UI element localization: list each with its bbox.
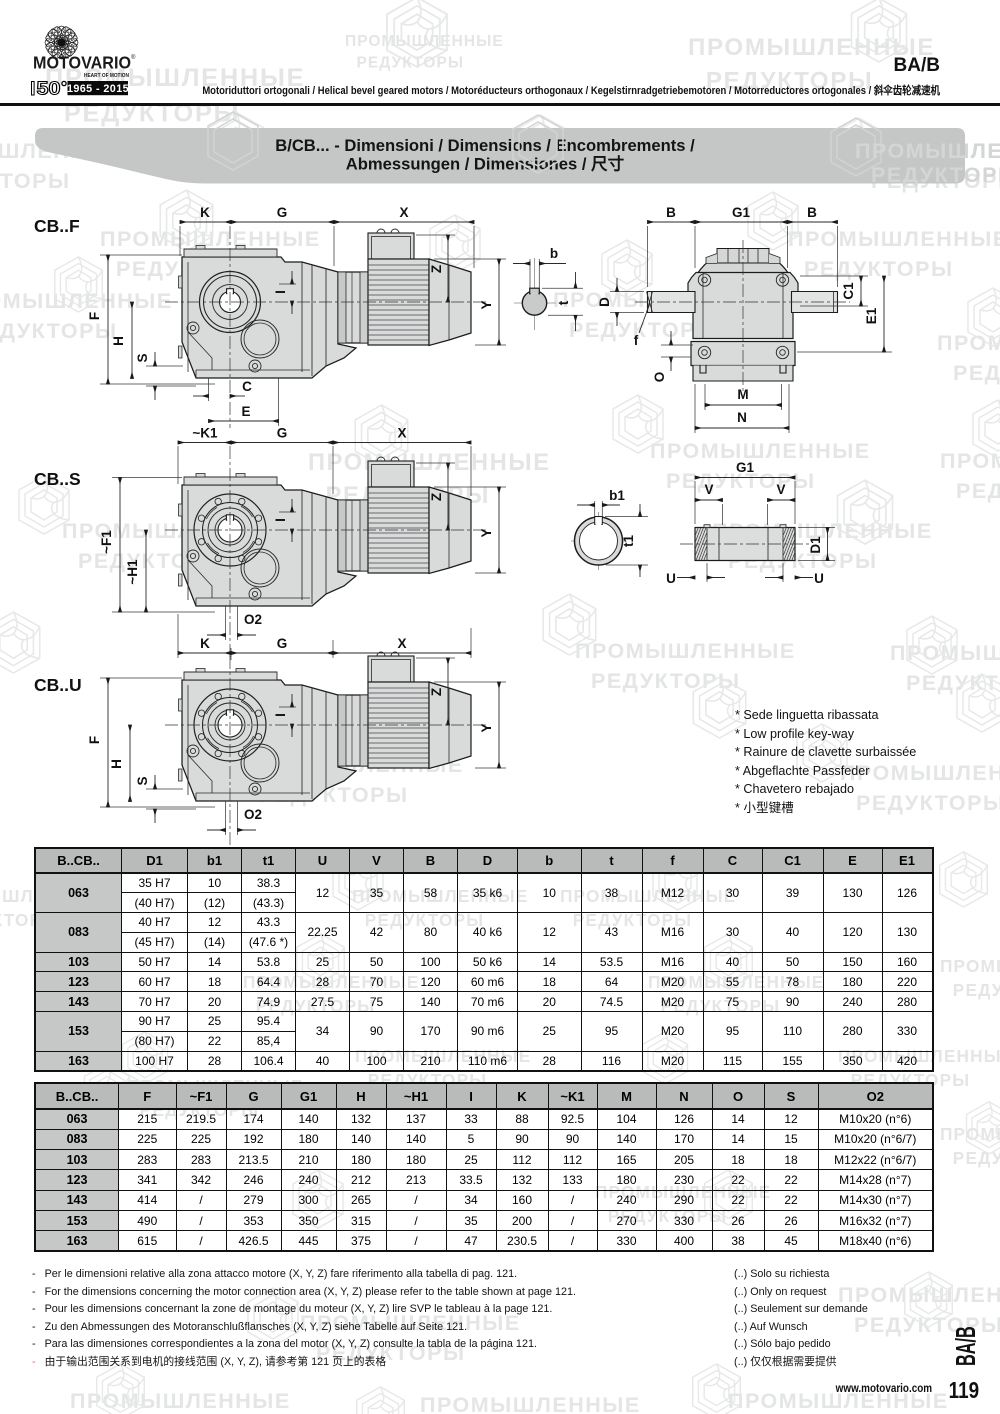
svg-text:U: U bbox=[814, 571, 824, 586]
svg-text:C1: C1 bbox=[841, 282, 856, 300]
svg-text:S: S bbox=[135, 353, 150, 362]
svg-text:Z: Z bbox=[429, 493, 444, 501]
svg-text:D: D bbox=[597, 297, 612, 307]
svg-text:K: K bbox=[200, 636, 210, 651]
svg-text:~H1: ~H1 bbox=[125, 559, 140, 585]
svg-text:B/CB... - Dimensioni / Dimensi: B/CB... - Dimensioni / Dimensions / Enco… bbox=[275, 136, 695, 155]
svg-text:b: b bbox=[550, 246, 558, 261]
svg-text:G1: G1 bbox=[736, 460, 755, 475]
svg-text:CB..U: CB..U bbox=[34, 675, 82, 695]
svg-text:~F1: ~F1 bbox=[99, 530, 114, 554]
svg-text:Z: Z bbox=[429, 688, 444, 696]
svg-text:D1: D1 bbox=[808, 536, 823, 554]
svg-text:V: V bbox=[776, 482, 785, 497]
svg-text:N: N bbox=[737, 410, 747, 425]
svg-text:B: B bbox=[666, 205, 676, 220]
svg-text:ПРОМЫШЛЕННЫЕ: ПРОМЫШЛЕННЫЕ bbox=[855, 139, 1000, 163]
svg-text:H: H bbox=[111, 336, 126, 346]
svg-text:B: B bbox=[807, 205, 817, 220]
svg-text:G: G bbox=[277, 205, 288, 220]
svg-text:O2: O2 bbox=[244, 612, 262, 627]
svg-text:C: C bbox=[242, 379, 252, 394]
svg-text:S: S bbox=[135, 776, 150, 785]
svg-text:F: F bbox=[87, 312, 102, 320]
svg-text:O: O bbox=[652, 372, 667, 383]
svg-text:~K1: ~K1 bbox=[192, 426, 218, 441]
svg-text:F: F bbox=[87, 736, 102, 744]
svg-text:CB..S: CB..S bbox=[34, 469, 81, 489]
svg-text:X: X bbox=[397, 426, 406, 441]
svg-text:b1: b1 bbox=[609, 488, 625, 503]
svg-text:t1: t1 bbox=[621, 535, 636, 547]
svg-text:H: H bbox=[109, 759, 124, 769]
svg-text:f: f bbox=[634, 333, 639, 348]
svg-text:G: G bbox=[277, 636, 288, 651]
svg-text:M: M bbox=[737, 387, 748, 402]
svg-text:O2: O2 bbox=[244, 807, 262, 822]
svg-text:CB..F: CB..F bbox=[34, 216, 80, 236]
svg-text:U: U bbox=[666, 571, 676, 586]
svg-text:Abmessungen / Dimensiones / 尺寸: Abmessungen / Dimensiones / 尺寸 bbox=[346, 154, 625, 174]
svg-text:I: I bbox=[273, 713, 288, 717]
svg-text:E1: E1 bbox=[864, 307, 879, 324]
svg-text:X: X bbox=[399, 205, 408, 220]
svg-text:G1: G1 bbox=[732, 205, 751, 220]
svg-text:I: I bbox=[273, 290, 288, 294]
svg-text:РЕДУКТОРЫ: РЕДУКТОРЫ bbox=[871, 163, 1000, 187]
svg-text:X: X bbox=[397, 636, 406, 651]
svg-text:Y: Y bbox=[479, 528, 494, 537]
svg-text:I: I bbox=[273, 518, 288, 522]
svg-text:K: K bbox=[200, 205, 210, 220]
svg-text:t: t bbox=[556, 300, 571, 305]
svg-text:G: G bbox=[277, 426, 288, 441]
svg-text:Y: Y bbox=[479, 723, 494, 732]
svg-text:E: E bbox=[241, 404, 250, 419]
svg-text:Y: Y bbox=[479, 300, 494, 309]
svg-text:Z: Z bbox=[429, 265, 444, 273]
svg-text:V: V bbox=[704, 482, 713, 497]
